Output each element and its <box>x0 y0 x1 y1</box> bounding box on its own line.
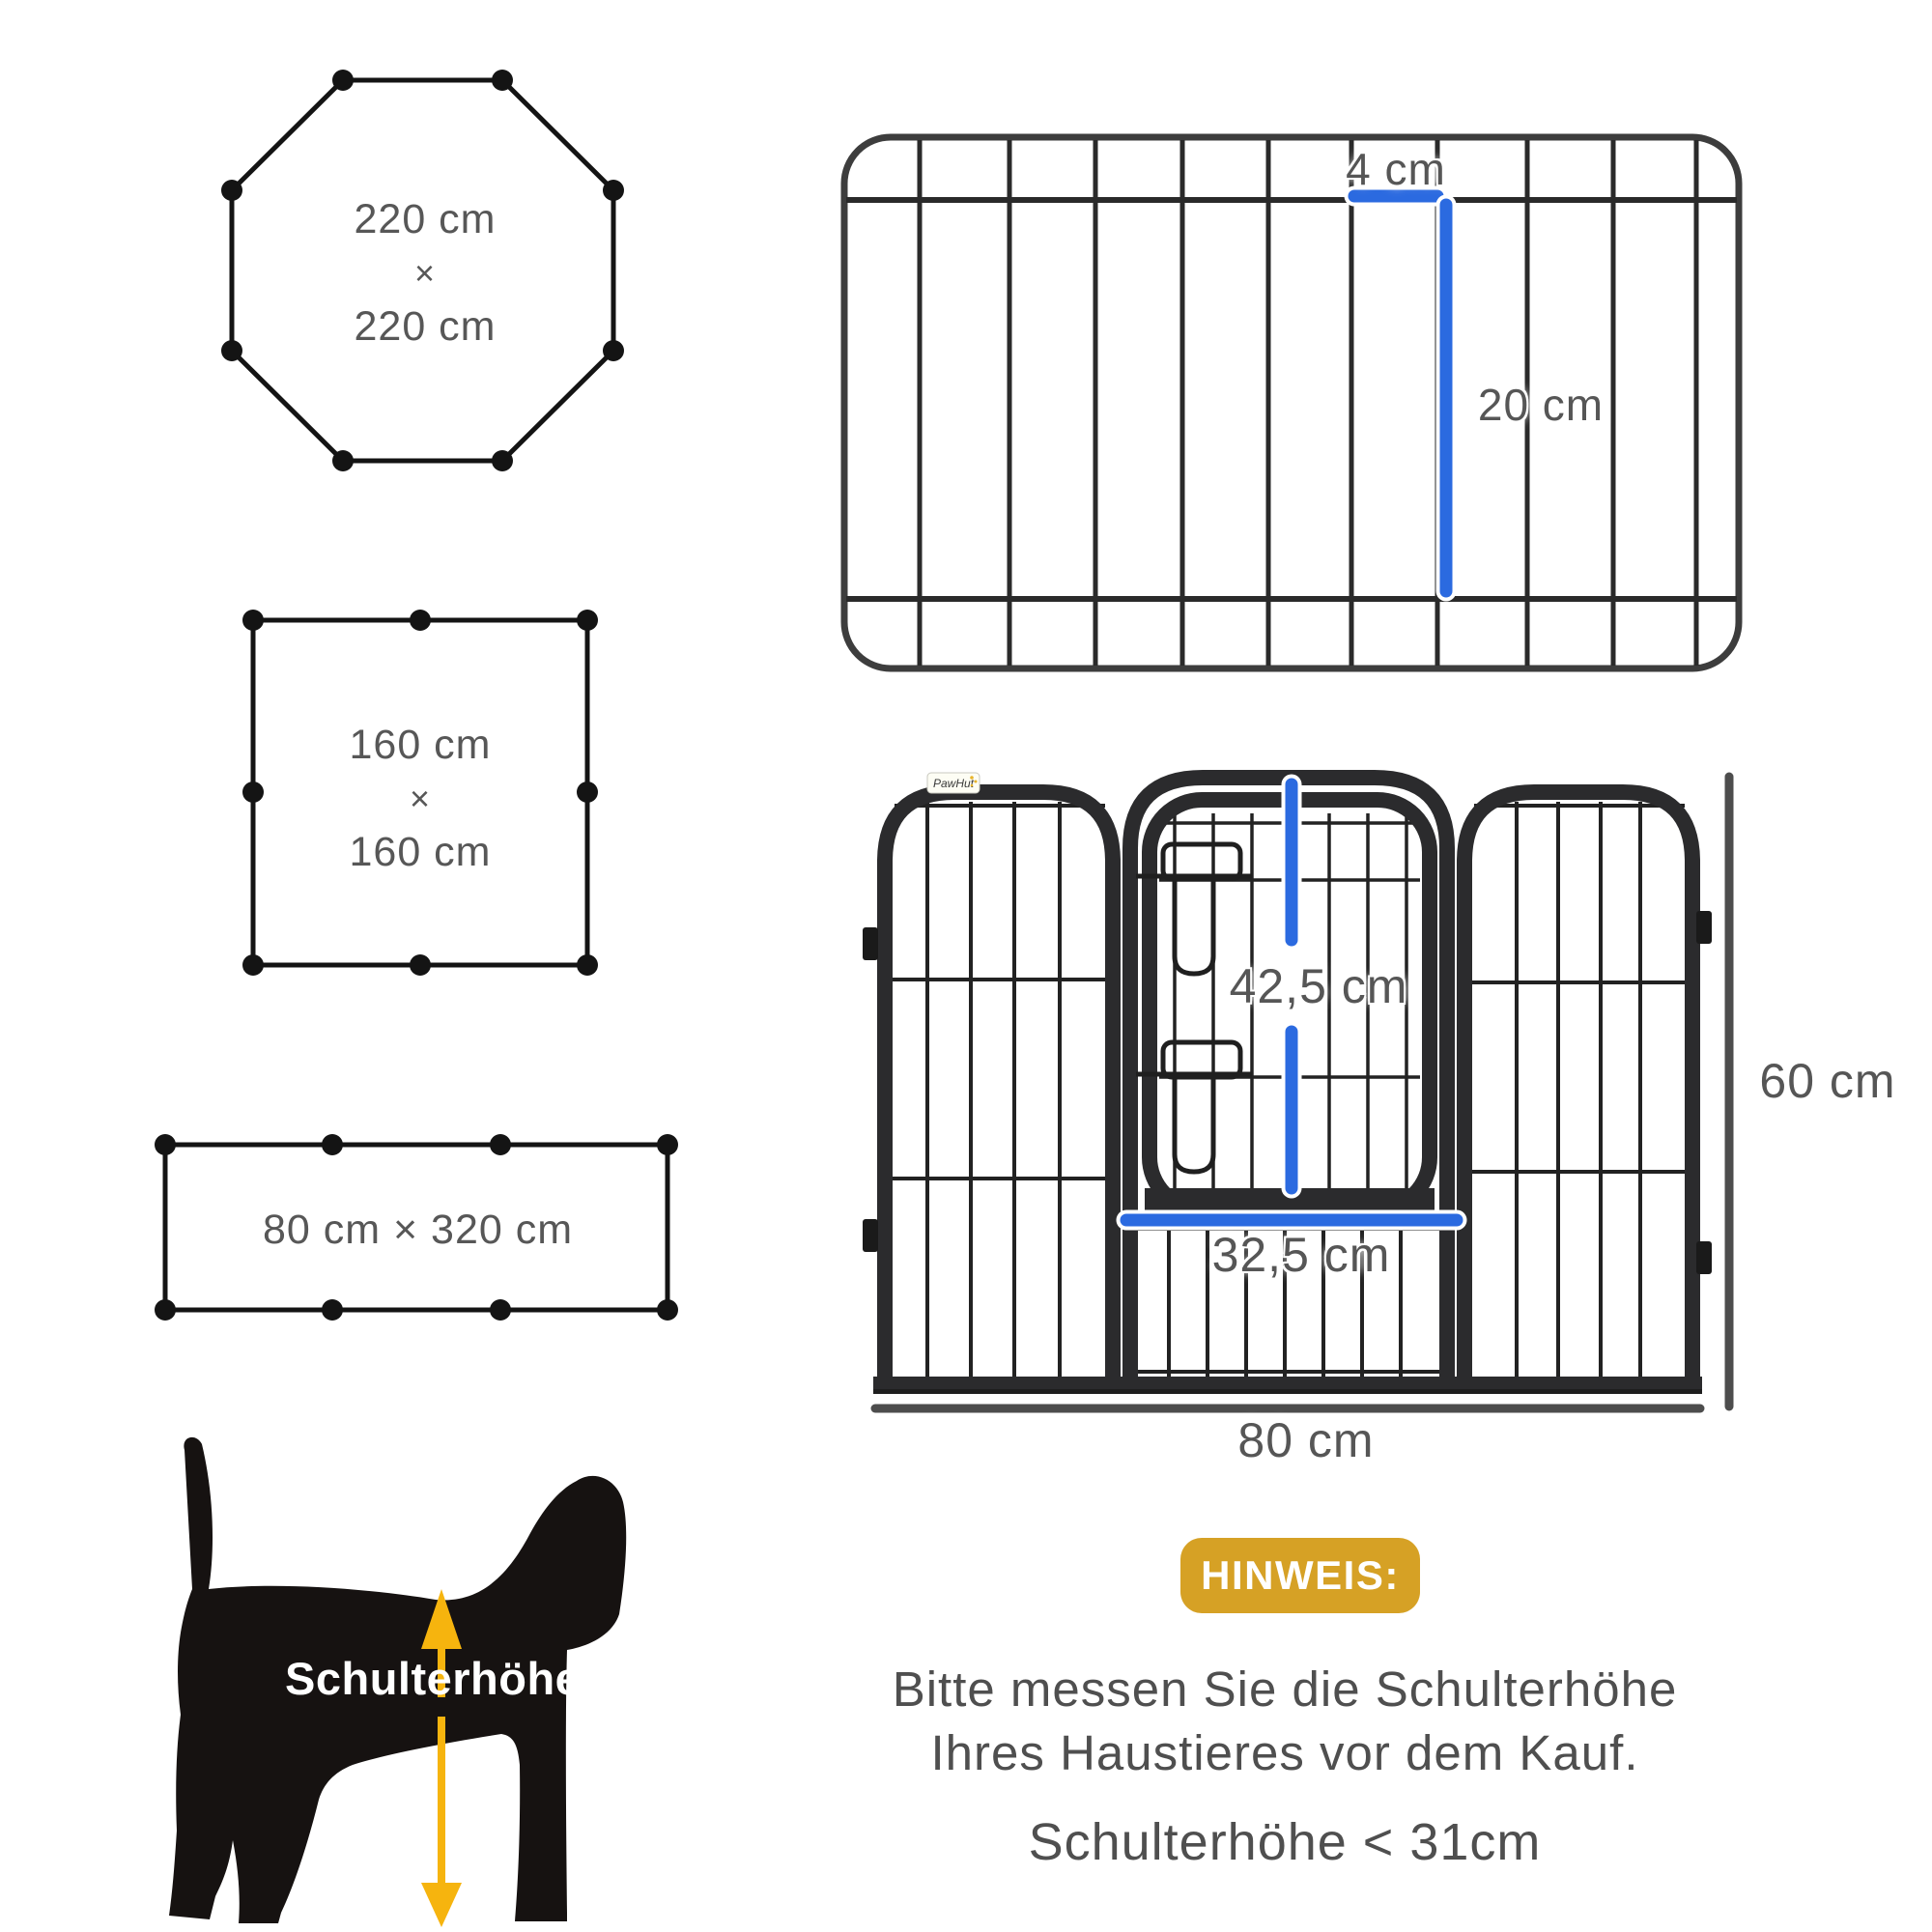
fence-bottom-shadow <box>873 1389 1702 1394</box>
bar-height-label: 20 cm <box>1444 379 1637 431</box>
rectangle-size-label: 80 cm × 320 cm <box>222 1204 613 1257</box>
shoulder-height-text: Schulterhöhe <box>285 1652 575 1705</box>
notice-badge: HINWEIS: <box>1180 1538 1420 1613</box>
left-panel-frame <box>885 792 1113 1383</box>
product-infographic: 220 cm × 220 cm 160 cm × 160 cm 80 cm × … <box>0 0 1932 1932</box>
left-panel-wires <box>893 802 1107 1379</box>
brand-label: PawHut <box>927 773 980 793</box>
octagon-height-label: 220 cm <box>280 300 570 354</box>
notice-line-3: Schulterhöhe < 31cm <box>753 1810 1816 1874</box>
brand-label-text: PawHut <box>933 777 975 790</box>
bar-gap-label: 4 cm <box>1299 143 1492 195</box>
square-dimensions: 160 cm × 160 cm <box>275 719 565 879</box>
rectangle-dimensions: 80 cm × 320 cm <box>222 1204 613 1257</box>
square-width-label: 160 cm <box>275 719 565 772</box>
notice-line-1: Bitte messen Sie die Schulterhöhe <box>753 1658 1816 1721</box>
square-times-label: × <box>275 772 565 826</box>
square-height-label: 160 cm <box>275 826 565 879</box>
octagon-times-label: × <box>280 246 570 300</box>
right-panel-frame <box>1464 792 1692 1383</box>
panel-width-label: 80 cm <box>1209 1412 1403 1468</box>
door-height-label: 42,5 cm <box>1183 958 1454 1014</box>
notice-line-2: Ihres Haustieres vor dem Kauf. <box>753 1721 1816 1785</box>
octagon-width-label: 220 cm <box>280 193 570 246</box>
panel-height-label: 60 cm <box>1731 1053 1924 1109</box>
notice-text-block: Bitte messen Sie die Schulterhöhe Ihres … <box>753 1658 1816 1874</box>
octagon-dimensions: 220 cm × 220 cm <box>280 193 570 354</box>
right-panel-wires <box>1472 802 1687 1379</box>
door-width-label: 32,5 cm <box>1166 1227 1436 1283</box>
shoulder-height-arrow <box>421 1589 462 1927</box>
